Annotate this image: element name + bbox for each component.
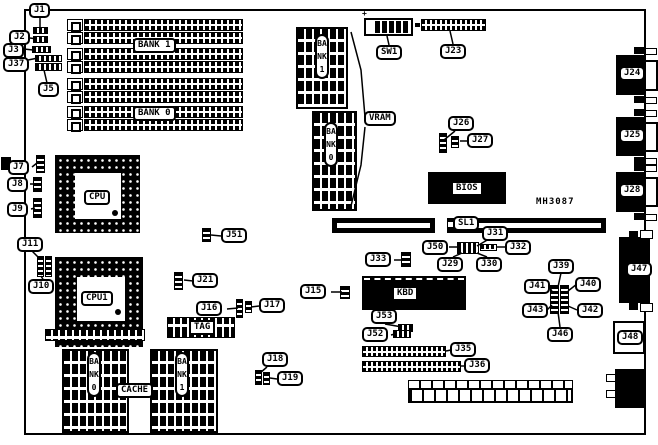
callout-j1: J1 [29, 3, 50, 18]
callout-j35: J35 [450, 342, 476, 357]
callout-j8: J8 [7, 177, 28, 192]
callout-sw1: SW1 [376, 45, 402, 60]
callout-j53: J53 [371, 309, 397, 324]
simm-bank0-label: BANK 0 [133, 106, 176, 121]
callout-j17: J17 [259, 298, 285, 313]
port-tab [640, 303, 653, 312]
callout-j36: J36 [464, 358, 490, 373]
cpu-pin1-dot [112, 210, 118, 216]
cache-bank1-strip: BANK1 [175, 352, 189, 397]
cpu1-pin1-dot [115, 309, 121, 315]
port-j24-shell [644, 60, 658, 91]
cpu-label: CPU [84, 190, 110, 205]
cache-bank0-strip: BANK0 [87, 352, 101, 397]
kbd-label: KBD [392, 286, 418, 301]
bios-label: BIOS [451, 181, 483, 196]
callout-j39: J39 [548, 259, 574, 274]
callout-j3: J3 [3, 43, 24, 58]
callout-j41: J41 [524, 279, 550, 294]
callout-j19: J19 [277, 371, 303, 386]
callout-j16: J16 [196, 301, 222, 316]
port-tab [645, 48, 657, 55]
part-number: MH3087 [536, 197, 575, 207]
port-tab [645, 214, 657, 221]
callout-j10: J10 [28, 279, 54, 294]
callout-j50: J50 [422, 240, 448, 255]
callout-sl1: SL1 [453, 216, 479, 231]
callout-j48: J48 [617, 330, 643, 345]
port-tab [606, 374, 616, 382]
simm-bank1-label: BANK 1 [133, 38, 176, 53]
callout-j47: J47 [626, 262, 652, 277]
callout-j42: J42 [577, 303, 603, 318]
motherboard-diagram: J1 J2 J3 J37 J5 BANK 1 BANK 0 BANK1 BANK… [0, 0, 658, 445]
callout-j51: J51 [221, 228, 247, 243]
callout-j5: J5 [38, 82, 59, 97]
callout-j32: J32 [505, 240, 531, 255]
callout-j26: J26 [448, 116, 474, 131]
callout-j40: J40 [575, 277, 601, 292]
callout-j15: J15 [300, 284, 326, 299]
kbd-socket-pins [364, 278, 464, 280]
callout-j9: J9 [7, 202, 28, 217]
callout-j28: J28 [619, 183, 645, 198]
port-tab [645, 165, 657, 172]
callout-j24: J24 [619, 66, 645, 81]
port-tab [645, 97, 657, 104]
callout-j31: J31 [482, 226, 508, 241]
vram-bank0-strip: BANK0 [324, 122, 338, 167]
port-tab [640, 230, 653, 239]
cpu1-label: CPU1 [81, 291, 113, 306]
cache-label: CACHE [116, 383, 153, 398]
vram-label: VRAM [364, 111, 396, 126]
port-j28-shell [644, 177, 658, 207]
port-tab [645, 110, 657, 117]
callout-j33: J33 [365, 252, 391, 267]
callout-j25: J25 [619, 128, 645, 143]
callout-j46: J46 [547, 327, 573, 342]
sw1-polarity-mark: + [362, 9, 368, 18]
callout-j23: J23 [440, 44, 466, 59]
callout-j37: J37 [3, 57, 29, 72]
callout-j52: J52 [362, 327, 388, 342]
port-tab [645, 158, 657, 165]
tag-label: TAG [189, 320, 215, 335]
callout-j30: J30 [476, 257, 502, 272]
port-j25-shell [644, 122, 658, 152]
callout-j43: J43 [522, 303, 548, 318]
callout-j27: J27 [467, 133, 493, 148]
callout-j21: J21 [192, 273, 218, 288]
callout-j11: J11 [17, 237, 43, 252]
callout-j29: J29 [437, 257, 463, 272]
callout-j18: J18 [262, 352, 288, 367]
vram-bank1-strip: BANK1 [315, 34, 329, 79]
callout-j7: J7 [8, 160, 29, 175]
port-tab [606, 390, 616, 398]
